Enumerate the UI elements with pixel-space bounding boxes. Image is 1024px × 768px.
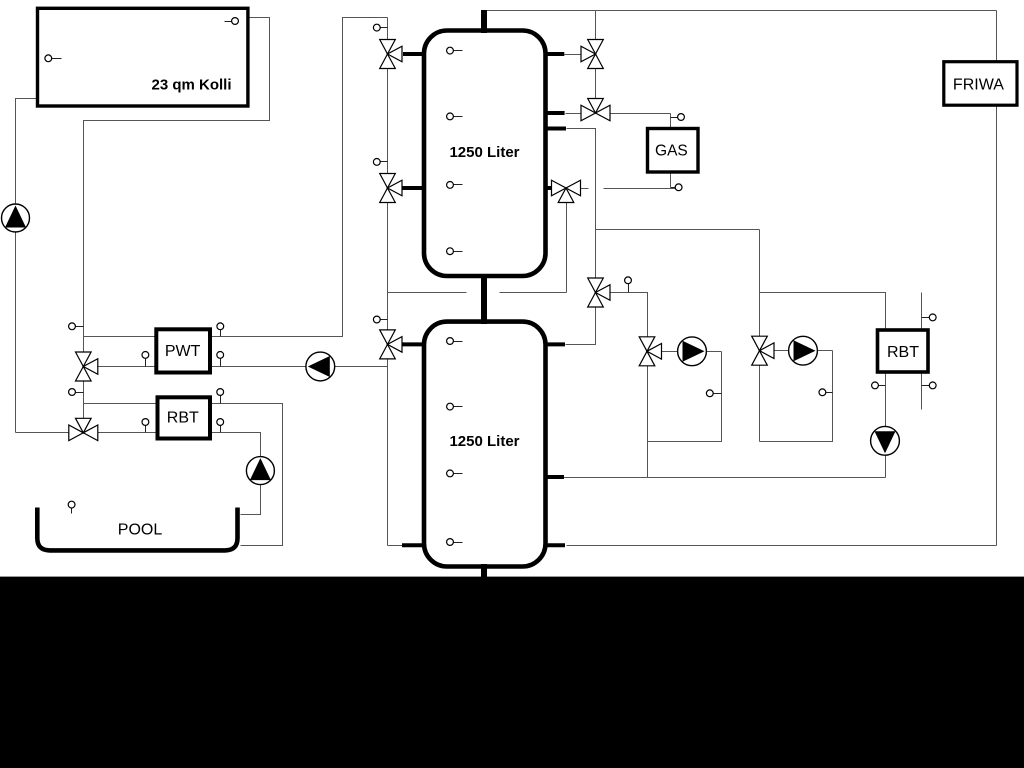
svg-text:PWT: PWT	[165, 343, 201, 360]
svg-text:1250 Liter: 1250 Liter	[449, 433, 519, 450]
svg-text:FRIWA: FRIWA	[953, 76, 1004, 93]
svg-text:RBT: RBT	[887, 344, 919, 361]
svg-text:23 qm Kolli: 23 qm Kolli	[151, 77, 231, 94]
svg-text:RBT: RBT	[167, 410, 199, 427]
svg-text:1250 Liter: 1250 Liter	[449, 144, 519, 161]
svg-text:POOL: POOL	[118, 522, 163, 539]
svg-text:GAS: GAS	[655, 143, 688, 160]
